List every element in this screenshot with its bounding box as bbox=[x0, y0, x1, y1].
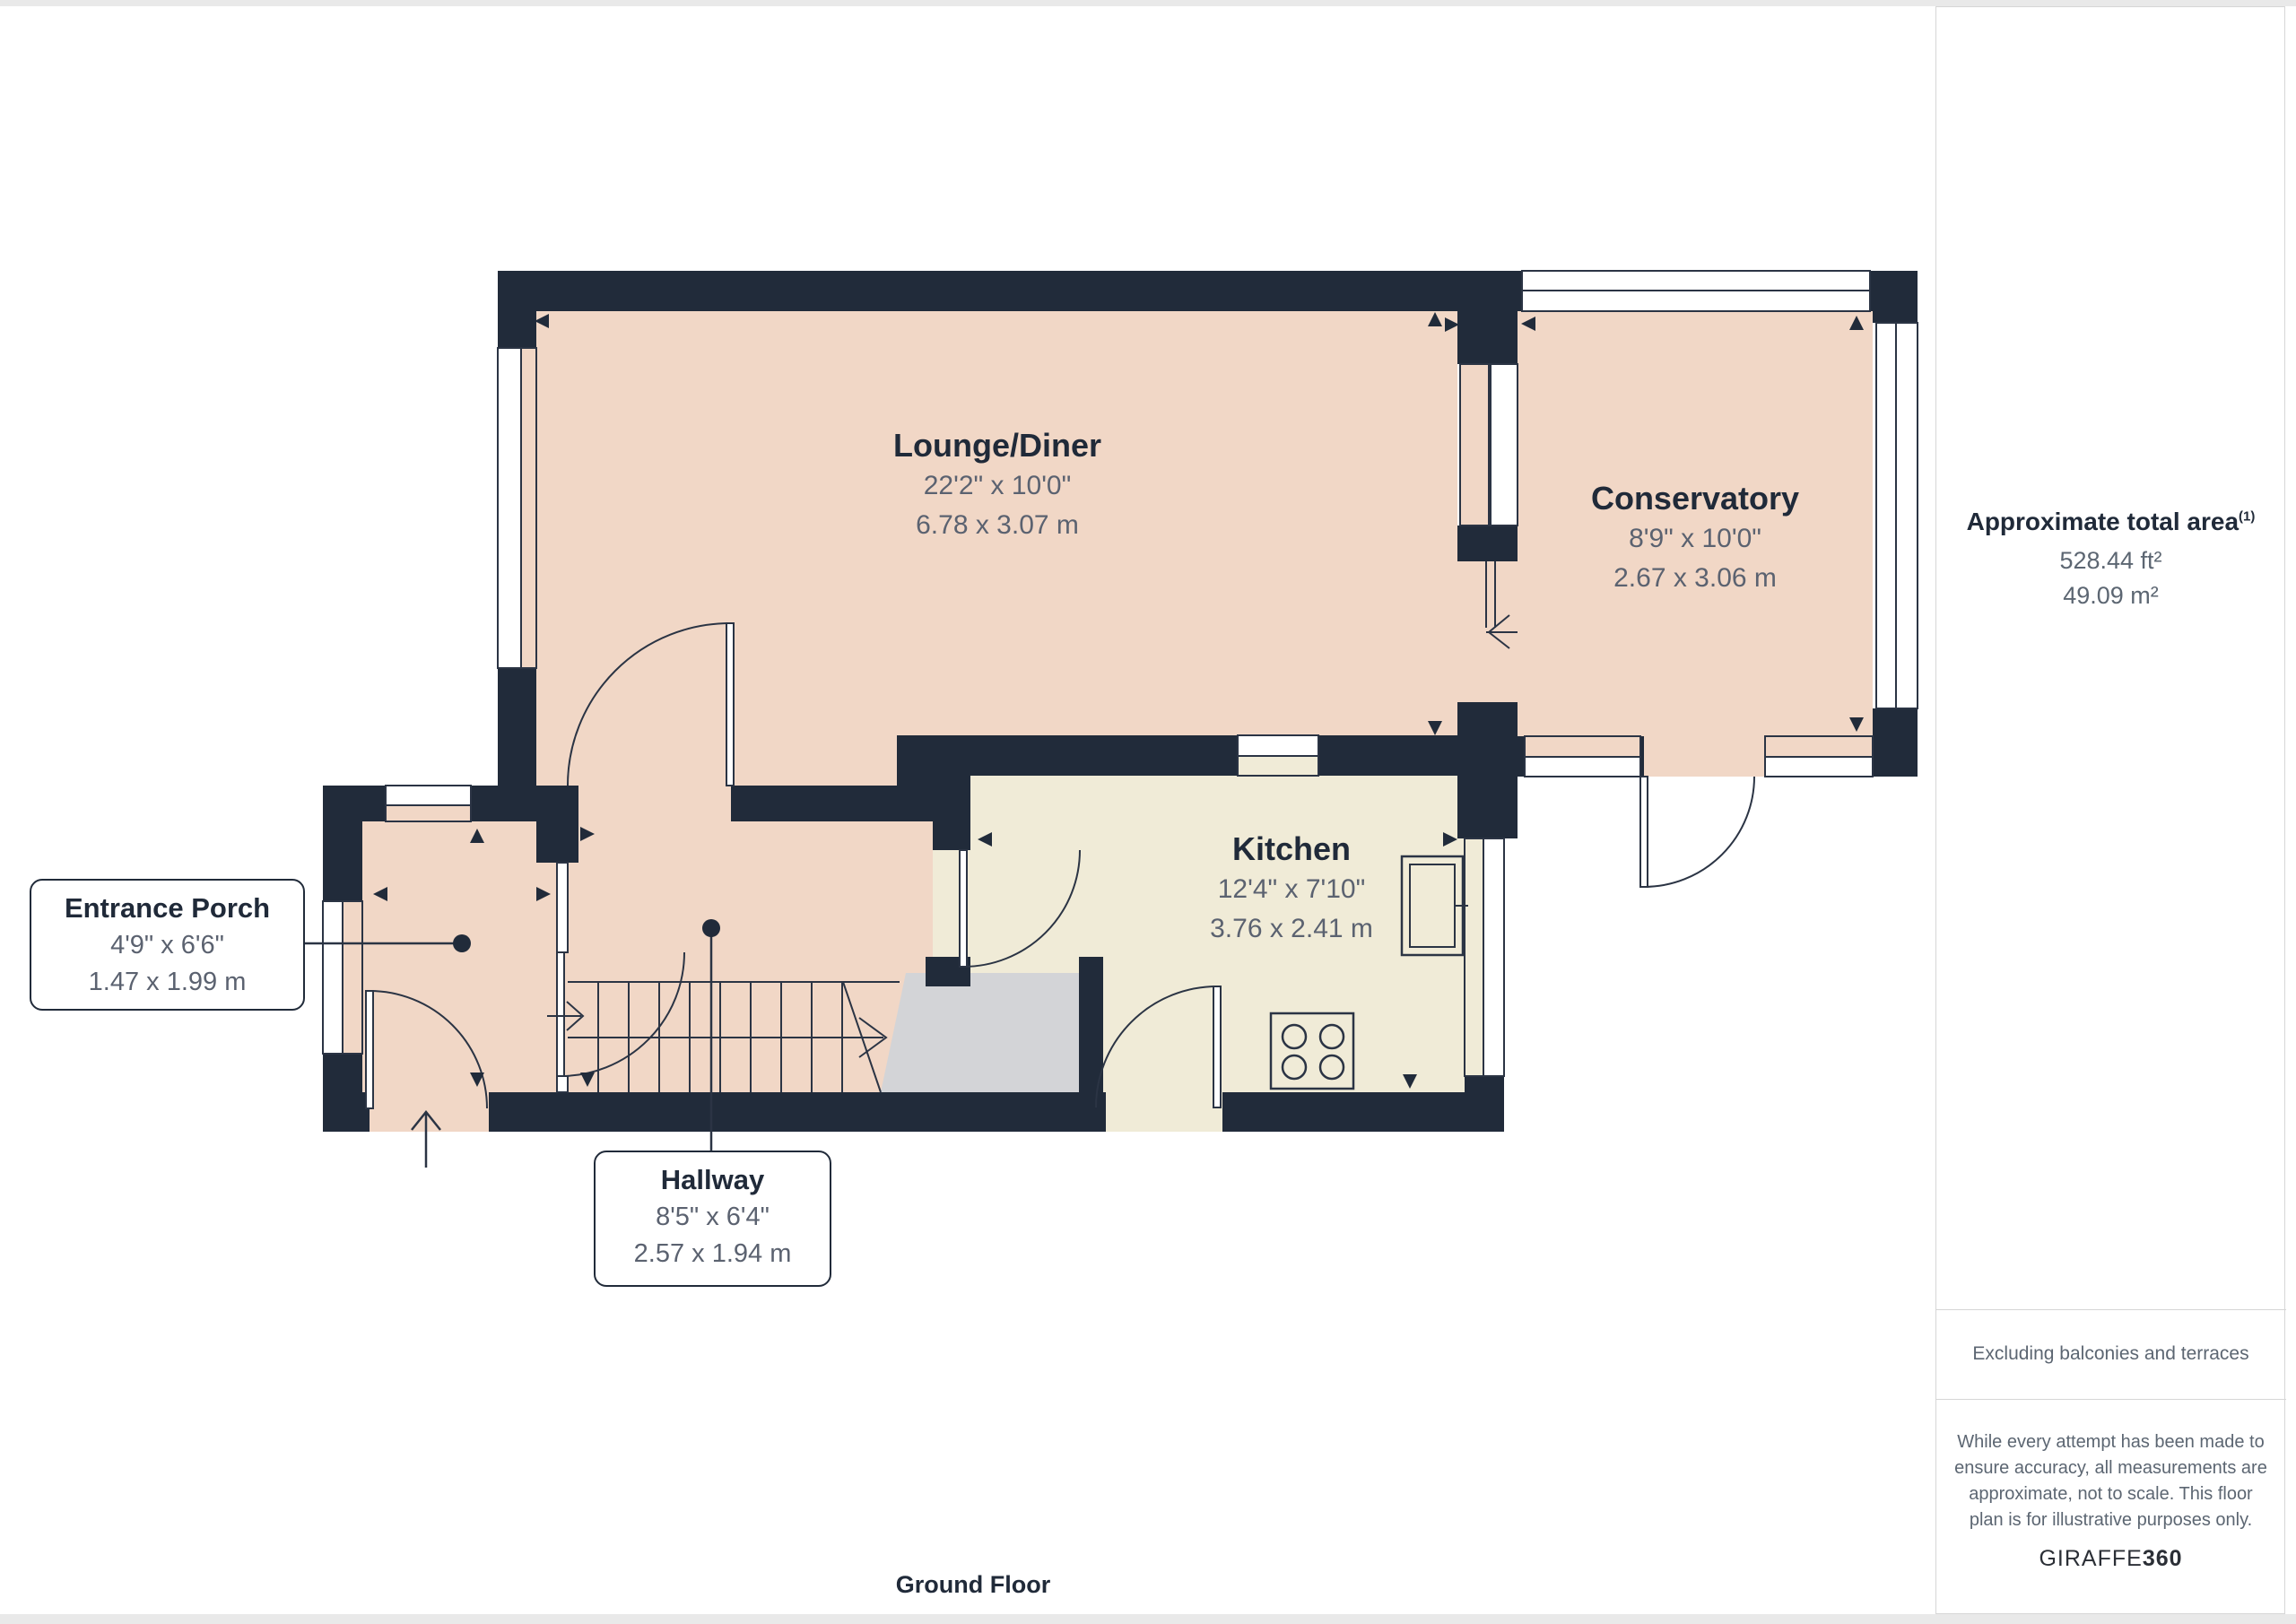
floorplan-page: Lounge/Diner 22'2" x 10'0" 6.78 x 3.07 m… bbox=[0, 0, 2296, 1624]
info-sidebar bbox=[1935, 6, 2285, 1614]
under-stairs-area bbox=[881, 973, 1079, 1092]
porch-leader-dot bbox=[453, 934, 471, 952]
sidebar-divider bbox=[1935, 1309, 2286, 1310]
front-door-leaf bbox=[366, 991, 373, 1108]
hall-kitchen-door-leaf bbox=[960, 850, 967, 967]
room-dims-metric: 1.47 x 1.99 m bbox=[31, 964, 303, 1001]
conservatory-door-leaf bbox=[1640, 777, 1648, 887]
floor-title: Ground Floor bbox=[839, 1571, 1108, 1599]
disclaimer: While every attempt has been made to ens… bbox=[1937, 1429, 2284, 1533]
room-name: Entrance Porch bbox=[31, 890, 303, 927]
porch-hall-door-leaf bbox=[557, 952, 564, 1076]
conservatory-bottom-window-right bbox=[1765, 757, 1873, 777]
room-dims-imperial: 4'9" x 6'6" bbox=[31, 927, 303, 964]
porch-floor bbox=[362, 821, 557, 1092]
giraffe360-logo: GIRAFFE360 bbox=[1937, 1546, 2284, 1572]
lounge-kitchen-hatch bbox=[1238, 735, 1318, 756]
excluding-note: Excluding balconies and terraces bbox=[1937, 1343, 2284, 1365]
hallway-leader-dot bbox=[702, 919, 720, 937]
kitchen-back-door-leaf bbox=[1213, 986, 1221, 1107]
conservatory-floor bbox=[1518, 311, 1873, 736]
porch-left-window bbox=[323, 901, 343, 1054]
lounge-conservatory-window bbox=[1491, 364, 1518, 525]
room-name: Hallway bbox=[596, 1161, 830, 1199]
conservatory-bottom-window-left bbox=[1525, 757, 1640, 777]
hob bbox=[1271, 1013, 1353, 1089]
room-dims-imperial: 8'5" x 6'4" bbox=[596, 1199, 830, 1236]
total-area-ft: 528.44 ft² bbox=[1937, 547, 2284, 575]
entrance-porch-callout: Entrance Porch 4'9" x 6'6" 1.47 x 1.99 m bbox=[30, 879, 305, 1011]
lounge-door-leaf bbox=[726, 623, 734, 786]
total-area-m: 49.09 m² bbox=[1937, 582, 2284, 610]
lounge-floor bbox=[536, 311, 1457, 786]
footnote-marker: (1) bbox=[2239, 509, 2255, 525]
kitchen-right-window bbox=[1483, 838, 1504, 1076]
hallway-callout: Hallway 8'5" x 6'4" 2.57 x 1.94 m bbox=[594, 1151, 831, 1287]
conservatory-door-arc bbox=[1644, 777, 1754, 887]
room-dims-metric: 2.57 x 1.94 m bbox=[596, 1236, 830, 1272]
kitchen-counter-appliance bbox=[1402, 856, 1463, 955]
porch-top-window bbox=[386, 786, 471, 805]
sidebar-divider bbox=[1935, 1399, 2286, 1400]
total-area-title: Approximate total area(1) bbox=[1937, 508, 2284, 536]
lounge-left-window bbox=[498, 348, 521, 668]
room-fills bbox=[343, 311, 1873, 1132]
